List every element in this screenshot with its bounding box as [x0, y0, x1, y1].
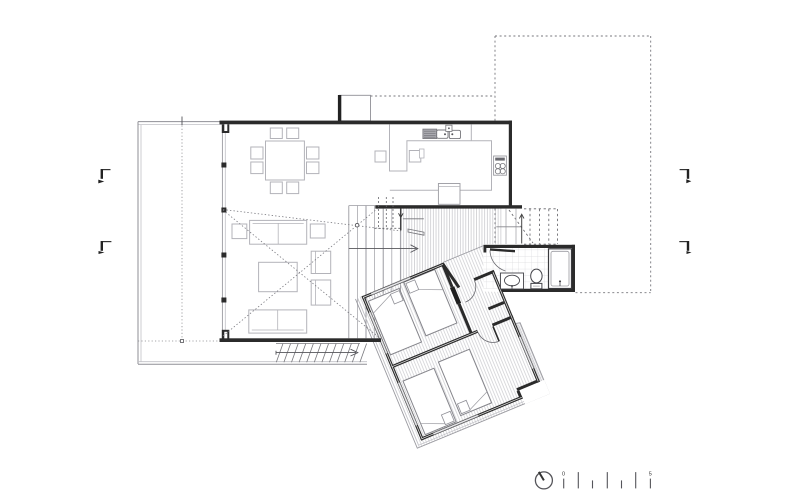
svg-text:5: 5: [649, 472, 652, 478]
svg-text:0: 0: [562, 472, 565, 478]
